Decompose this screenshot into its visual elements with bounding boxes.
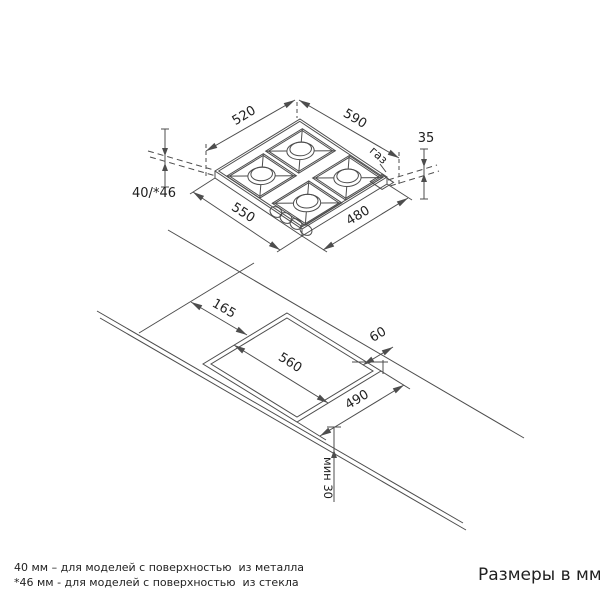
burner-left [227,154,297,198]
dim-label-560: 560 [275,350,304,376]
dim-label-35: 35 [418,131,435,146]
extension-line [387,184,412,200]
dim-arrow [421,159,427,167]
dim-label-min-30: мин 30 [321,457,335,499]
dimension-drawing: 520 590 35 40/*46 550 480 газ [0,0,600,600]
worktop-level-right [390,171,439,186]
dim-arrow [421,174,427,182]
extension-line [277,236,302,252]
worktop-front-edge [97,311,463,523]
footnote-metal: 40 мм – для моделей с поверхностью из ме… [14,561,304,574]
dim-label-480: 480 [344,203,373,229]
units-note: Размеры в мм [478,565,600,585]
dim-label-520: 520 [230,103,259,129]
dim-label-40-46: 40/*46 [132,186,176,201]
worktop-level-right [388,165,437,180]
dim-height-40-46 [161,129,169,187]
dim-label-60: 60 [367,324,389,345]
installation-cutout-view: 165 560 490 60 мин 30 [97,230,524,530]
burner-front [272,181,342,225]
dim-label-165: 165 [209,296,238,321]
gas-label: газ [367,143,391,166]
hob-isometric-view: 520 590 35 40/*46 550 480 газ [132,100,439,252]
dim-height-35 [420,149,428,199]
extension-line [381,371,410,389]
dim-label-590: 590 [340,106,369,132]
extension-line [297,422,326,440]
extension-line [190,178,215,194]
worktop-level-left [148,151,214,170]
worktop-end-edge [139,263,254,333]
dim-arrow [162,163,168,171]
dim-label-490: 490 [343,387,372,413]
technical-drawing-page: 520 590 35 40/*46 550 480 газ [0,0,600,600]
footnote-glass: *46 мм - для моделей с поверхностью из с… [14,576,299,589]
